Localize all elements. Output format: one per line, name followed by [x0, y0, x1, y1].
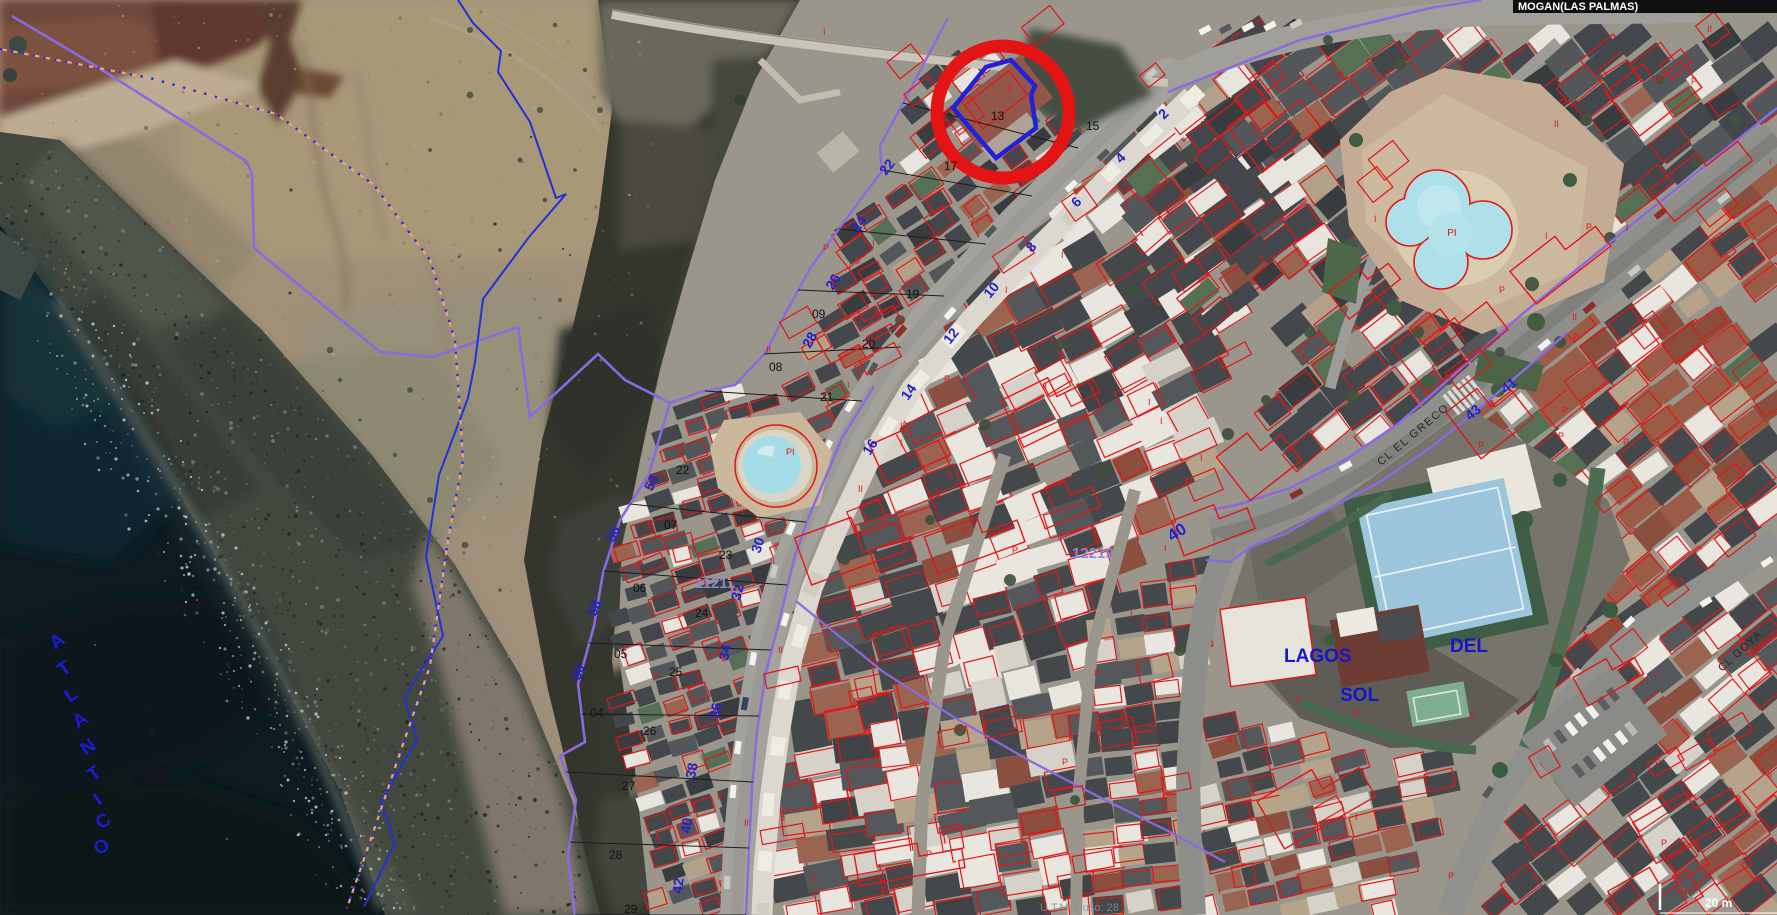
svg-text:19: 19	[906, 287, 920, 301]
svg-text:P: P	[1425, 389, 1431, 399]
svg-text:II: II	[811, 874, 816, 884]
svg-text:DEL: DEL	[1450, 636, 1488, 657]
svg-text:P: P	[1353, 708, 1359, 718]
svg-text:I: I	[1527, 826, 1530, 836]
svg-text:I: I	[1553, 646, 1556, 656]
svg-text:II: II	[935, 487, 940, 497]
svg-text:II: II	[1554, 119, 1559, 129]
svg-text:I: I	[997, 261, 1000, 271]
svg-text:I: I	[823, 27, 826, 37]
svg-text:42: 42	[669, 877, 687, 894]
svg-text:P: P	[1655, 758, 1661, 768]
svg-text:I: I	[1545, 231, 1548, 241]
svg-text:P: P	[1680, 840, 1686, 850]
svg-text:I: I	[1572, 444, 1575, 454]
svg-text:MOGAN(LAS PALMAS): MOGAN(LAS PALMAS)	[1518, 1, 1639, 13]
svg-text:22: 22	[676, 463, 690, 477]
svg-text:P: P	[1478, 440, 1484, 450]
svg-text:LAGOS: LAGOS	[1284, 646, 1352, 667]
svg-text:II: II	[858, 484, 863, 494]
svg-text:P: P	[1691, 76, 1697, 86]
svg-text:I: I	[1164, 543, 1167, 553]
svg-text:II: II	[1042, 382, 1047, 392]
svg-text:P: P	[870, 654, 876, 664]
svg-text:II: II	[744, 818, 749, 828]
svg-text:P: P	[1469, 711, 1475, 721]
svg-text:I: I	[1160, 416, 1163, 426]
svg-text:P: P	[1586, 222, 1592, 232]
svg-text:SOL: SOL	[1340, 685, 1379, 706]
svg-text:II: II	[766, 345, 771, 355]
svg-text:I: I	[1639, 481, 1642, 491]
svg-text:1121..: 1121..	[695, 575, 736, 592]
svg-text:I: I	[1374, 214, 1377, 224]
svg-text:I: I	[1148, 397, 1151, 407]
svg-text:I: I	[1406, 77, 1409, 87]
svg-text:II: II	[717, 792, 722, 802]
svg-text:P: P	[1224, 185, 1230, 195]
svg-text:26: 26	[643, 724, 657, 738]
svg-text:II: II	[1295, 694, 1300, 704]
svg-text:P: P	[1338, 70, 1344, 80]
svg-text:24: 24	[695, 606, 709, 620]
svg-text:P: P	[1012, 545, 1018, 555]
svg-text:II: II	[1260, 254, 1265, 264]
svg-text:I: I	[1564, 59, 1567, 69]
svg-text:P: P	[1623, 437, 1629, 447]
svg-text:28: 28	[609, 848, 623, 862]
svg-text:I: I	[1005, 285, 1008, 295]
svg-text:P: P	[926, 849, 932, 859]
svg-text:17: 17	[944, 159, 958, 173]
svg-text:I: I	[1739, 221, 1742, 231]
svg-text:P: P	[1062, 757, 1068, 767]
svg-text:P: P	[1573, 332, 1579, 342]
svg-text:P: P	[962, 526, 968, 536]
svg-text:PI: PI	[1447, 228, 1456, 239]
svg-text:23: 23	[719, 548, 733, 562]
svg-text:36: 36	[706, 701, 724, 719]
svg-text:07: 07	[664, 518, 678, 532]
svg-text:II: II	[1007, 83, 1012, 93]
svg-text:P: P	[823, 243, 829, 253]
svg-text:08: 08	[769, 360, 783, 374]
svg-text:P: P	[653, 672, 659, 682]
svg-text:I: I	[1769, 157, 1772, 167]
svg-text:P: P	[1317, 345, 1323, 355]
svg-text:I: I	[1061, 250, 1064, 260]
svg-text:P: P	[1448, 871, 1454, 881]
svg-text:II: II	[1707, 24, 1712, 34]
svg-text:20: 20	[862, 337, 876, 351]
svg-text:I: I	[1626, 223, 1629, 233]
svg-text:09: 09	[812, 307, 826, 321]
svg-text:PI: PI	[786, 447, 795, 457]
svg-text:II: II	[1227, 735, 1232, 745]
svg-text:P: P	[1718, 714, 1724, 724]
svg-text:I: I	[1355, 812, 1358, 822]
svg-text:I: I	[1200, 453, 1203, 463]
svg-text:I: I	[903, 427, 906, 437]
svg-text:I: I	[1653, 668, 1656, 678]
svg-text:II: II	[778, 645, 783, 655]
svg-text:13: 13	[991, 109, 1005, 123]
svg-text:15: 15	[1086, 119, 1100, 133]
svg-text:II: II	[770, 556, 775, 566]
svg-text:20 m: 20 m	[1705, 896, 1732, 910]
svg-text:05: 05	[614, 647, 628, 661]
svg-text:P: P	[1094, 668, 1100, 678]
svg-text:P: P	[1661, 838, 1667, 848]
svg-text:P: P	[1499, 285, 1505, 295]
svg-text:I: I	[872, 238, 875, 248]
svg-text:I: I	[1130, 609, 1133, 619]
svg-text:29: 29	[624, 902, 638, 915]
svg-text:II: II	[1572, 312, 1577, 322]
svg-text:P: P	[947, 470, 953, 480]
svg-text:40: 40	[677, 817, 695, 835]
svg-text:12219: 12219	[1072, 545, 1114, 562]
svg-text:P: P	[1558, 431, 1564, 441]
svg-text:I: I	[900, 438, 903, 448]
svg-text:II: II	[1767, 770, 1772, 780]
svg-text:06: 06	[633, 581, 647, 595]
svg-text:P: P	[1707, 443, 1713, 453]
svg-text:I: I	[1740, 48, 1743, 58]
svg-text:04: 04	[590, 706, 604, 720]
svg-text:I: I	[1218, 886, 1221, 896]
svg-text:P: P	[944, 374, 950, 384]
svg-text:27: 27	[622, 779, 636, 793]
svg-text:I: I	[742, 507, 745, 517]
svg-text:25: 25	[669, 665, 683, 679]
svg-text:38: 38	[682, 761, 700, 779]
svg-text:P: P	[1562, 405, 1568, 415]
svg-text:I: I	[1434, 653, 1437, 663]
svg-text:I: I	[1648, 600, 1651, 610]
svg-text:II: II	[855, 256, 860, 266]
svg-text:21: 21	[820, 390, 834, 404]
svg-text:I: I	[1261, 750, 1264, 760]
svg-text:I: I	[1159, 390, 1162, 400]
svg-text:P: P	[1735, 794, 1741, 804]
svg-text:I: I	[847, 380, 850, 390]
svg-text:U.T.M. Huso: 28 ...: U.T.M. Huso: 28 ...	[1040, 902, 1131, 914]
